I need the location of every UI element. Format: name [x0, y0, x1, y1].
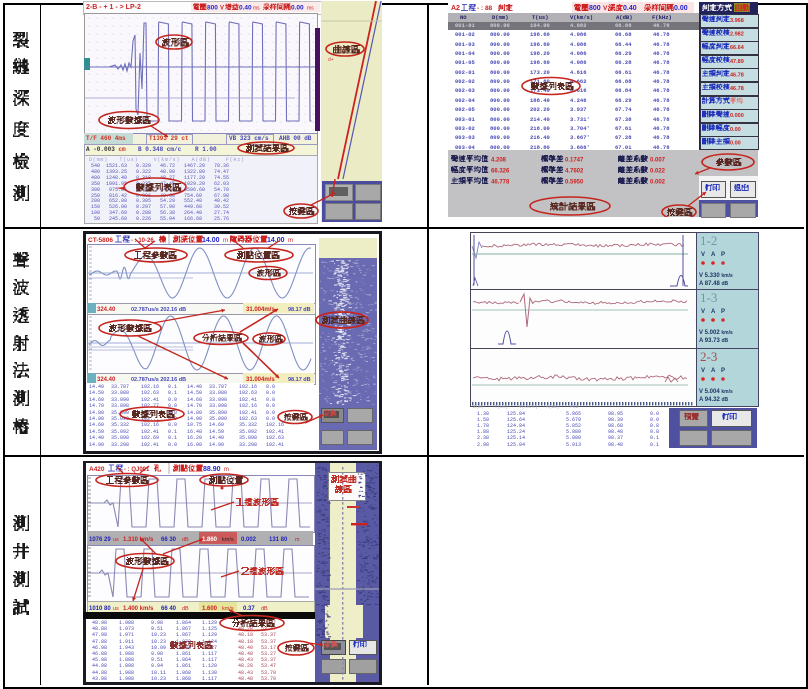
- svg-text:0.00: 0.00: [730, 127, 741, 133]
- svg-text:46.78: 46.78: [730, 86, 744, 92]
- svg-text:V 5.004 km/s: V 5.004 km/s: [699, 389, 733, 395]
- svg-text:V: V: [220, 6, 224, 12]
- svg-text:dB: dB: [182, 606, 189, 612]
- svg-text:88.90: 88.90: [203, 466, 221, 473]
- svg-text:m: m: [295, 537, 300, 543]
- svg-text:P: P: [721, 309, 725, 315]
- svg-text:1010 80: 1010 80: [89, 606, 111, 612]
- svg-text:324.40: 324.40: [97, 307, 116, 313]
- svg-text:02.787us/s 202.16 dB: 02.787us/s 202.16 dB: [131, 377, 186, 383]
- svg-text:0.00: 0.00: [291, 5, 304, 12]
- svg-text:98.17 dB: 98.17 dB: [288, 307, 311, 313]
- svg-text:0.002: 0.002: [650, 180, 666, 186]
- svg-text:us: us: [113, 537, 119, 543]
- svg-text:A2: A2: [451, 5, 460, 12]
- svg-text:1-2: 1-2: [700, 233, 717, 248]
- svg-text:m: m: [224, 467, 229, 473]
- svg-text:km/s: km/s: [222, 537, 234, 543]
- svg-text:800: 800: [589, 5, 601, 12]
- svg-text:31.004m/s: 31.004m/s: [246, 377, 275, 383]
- svg-text:324.40: 324.40: [97, 377, 116, 383]
- svg-text:1.860: 1.860: [202, 537, 218, 543]
- svg-text:46.78: 46.78: [730, 72, 744, 78]
- svg-text:A: A: [711, 368, 716, 374]
- svg-text:A 87.48 dB: A 87.48 dB: [699, 281, 729, 287]
- svg-text:V: V: [603, 5, 608, 12]
- svg-text:1-3: 1-3: [700, 290, 717, 305]
- svg-text:ms: ms: [253, 6, 260, 12]
- svg-text:47.89: 47.89: [730, 59, 744, 65]
- svg-text:66.326: 66.326: [491, 169, 510, 175]
- svg-text:A 93.73 dB: A 93.73 dB: [699, 338, 729, 344]
- svg-text:V: V: [701, 309, 705, 315]
- svg-text:0.40: 0.40: [239, 5, 252, 12]
- svg-text:0.022: 0.022: [650, 169, 666, 175]
- svg-text:V: V: [701, 252, 705, 258]
- svg-text:0.00: 0.00: [730, 140, 741, 146]
- svg-text:0.40: 0.40: [623, 5, 637, 12]
- svg-text:14.00: 14.00: [202, 237, 220, 244]
- svg-text:0.1747: 0.1747: [565, 158, 584, 164]
- svg-text:800: 800: [207, 5, 218, 12]
- svg-text:46.778: 46.778: [491, 180, 510, 186]
- svg-text:P: P: [721, 368, 725, 374]
- svg-text:V: V: [701, 368, 705, 374]
- svg-text:31.004m/s: 31.004m/s: [246, 307, 275, 313]
- svg-text:A 94.32 dB: A 94.32 dB: [699, 397, 729, 403]
- svg-text:CT-5806: CT-5806: [88, 237, 113, 244]
- svg-text:0.002: 0.002: [241, 537, 257, 543]
- svg-text:V 5.002 km/s: V 5.002 km/s: [699, 330, 733, 336]
- svg-text:131 80: 131 80: [269, 537, 288, 543]
- svg-text:m: m: [288, 238, 293, 244]
- svg-text:V 5.330 km/s: V 5.330 km/s: [699, 273, 733, 279]
- svg-text:0.000: 0.000: [730, 113, 744, 119]
- svg-text:02.787us/s 202.16 dB: 02.787us/s 202.16 dB: [131, 307, 186, 313]
- svg-text:A420: A420: [89, 466, 105, 473]
- svg-text:m: m: [223, 238, 228, 244]
- svg-text:1.400 km/s: 1.400 km/s: [123, 606, 154, 612]
- svg-text:0.007: 0.007: [650, 158, 666, 164]
- svg-text:- : 10-26: - : 10-26: [131, 238, 154, 244]
- svg-text:4.208: 4.208: [491, 158, 507, 164]
- svg-text:- : 88: - : 88: [477, 5, 493, 12]
- svg-text:A: A: [711, 309, 716, 315]
- svg-text:1.600: 1.600: [202, 606, 218, 612]
- svg-text:66 40: 66 40: [161, 606, 177, 612]
- svg-text:1076 29: 1076 29: [89, 537, 111, 543]
- svg-text:2-3: 2-3: [700, 349, 717, 364]
- svg-text:0.5950: 0.5950: [565, 180, 584, 186]
- svg-text:66 30: 66 30: [161, 537, 177, 543]
- svg-text:2.982: 2.982: [730, 32, 744, 38]
- svg-text:3.968: 3.968: [730, 18, 744, 24]
- svg-text:us: us: [113, 606, 119, 612]
- svg-text:1.310 km/s: 1.310 km/s: [123, 537, 154, 543]
- svg-text:A: A: [711, 252, 716, 258]
- svg-text:4.7602: 4.7602: [565, 169, 584, 175]
- svg-text:P: P: [721, 252, 725, 258]
- svg-text:0.00: 0.00: [674, 5, 688, 12]
- svg-text:dB: dB: [182, 537, 189, 543]
- svg-text:d+: d+: [328, 57, 334, 63]
- svg-text:66.64: 66.64: [730, 45, 745, 51]
- svg-text:98.17 dB: 98.17 dB: [288, 377, 311, 383]
- svg-text:0.37: 0.37: [243, 606, 255, 612]
- svg-text:dB: dB: [261, 606, 268, 612]
- svg-text:ms: ms: [307, 6, 314, 12]
